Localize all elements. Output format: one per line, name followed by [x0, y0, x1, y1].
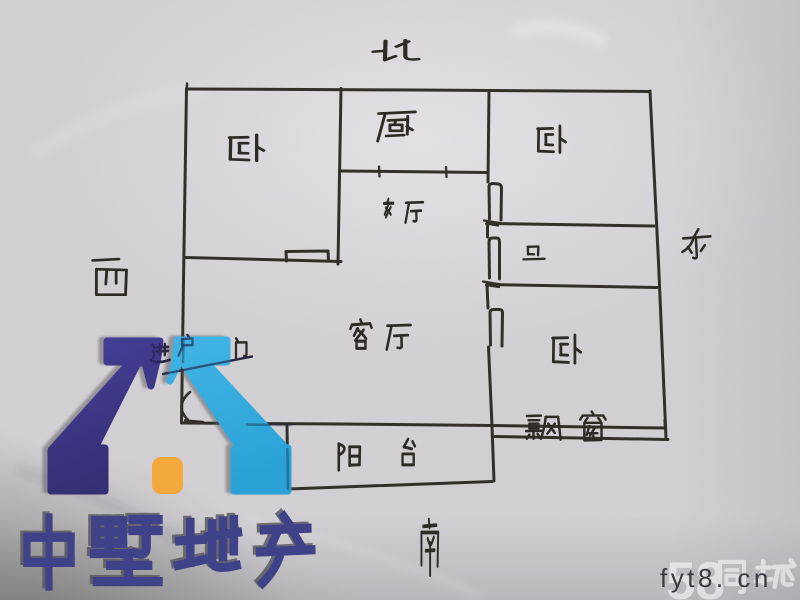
svg-text:fyt8. cn: fyt8. cn: [660, 563, 772, 593]
